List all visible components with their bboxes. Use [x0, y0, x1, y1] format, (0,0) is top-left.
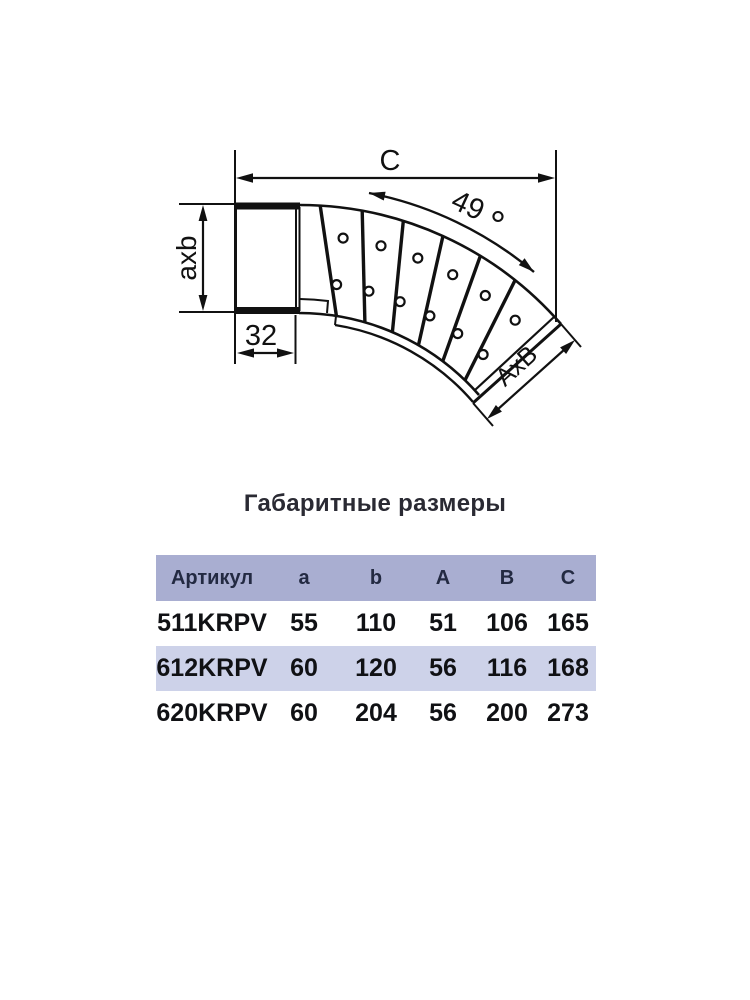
value-cell: 51	[412, 609, 474, 638]
table-row: 620KRPV6020456200273	[156, 691, 596, 736]
article-cell: 620KRPV	[156, 699, 268, 728]
value-cell: 120	[340, 654, 412, 683]
elbow-dimension-drawing: C axb 32	[0, 0, 750, 470]
dimensions-table: Артикул a b A B C 511KRPV551105110616561…	[156, 555, 596, 736]
rivet-icon	[332, 280, 341, 289]
value-cell: 110	[340, 609, 412, 638]
collar-step-line	[300, 299, 328, 313]
arrowhead-left-icon	[236, 173, 253, 183]
table-row: 511KRPV5511051106165	[156, 601, 596, 646]
column-header-A: A	[412, 567, 474, 590]
value-cell: 165	[540, 609, 596, 638]
arrowhead-ccw-icon	[369, 192, 386, 201]
rivet-icon	[339, 234, 348, 243]
value-cell: 106	[474, 609, 540, 638]
article-cell: 612KRPV	[156, 654, 268, 683]
column-header-b: b	[340, 567, 412, 590]
rivet-icon	[448, 270, 457, 279]
arrowhead-right-icon	[277, 348, 294, 357]
column-header-a: a	[268, 567, 340, 590]
rivet-icon	[453, 329, 462, 338]
value-cell: 168	[540, 654, 596, 683]
value-cell: 60	[268, 699, 340, 728]
table-title: Габаритные размеры	[0, 490, 750, 518]
segment-seam-line	[392, 221, 403, 332]
arrowhead-down-icon	[199, 295, 208, 311]
value-cell: 60	[268, 654, 340, 683]
lip-connector	[335, 316, 336, 325]
rivet-icon	[364, 287, 373, 296]
inlet-size-label: axb	[171, 235, 202, 280]
dimension-collar-width: 32	[237, 315, 296, 364]
table-body: 511KRPV5511051106165612KRPV6012056116168…	[156, 601, 596, 736]
rivet-icon	[511, 316, 520, 325]
dimension-angle: 49 °	[369, 185, 534, 272]
rivet-icon	[377, 241, 386, 250]
rivet-icon	[481, 291, 490, 300]
rivet-icon	[425, 311, 434, 320]
segment-seam-line	[362, 211, 365, 322]
value-cell: 204	[340, 699, 412, 728]
value-cell: 200	[474, 699, 540, 728]
article-cell: 511KRPV	[156, 609, 268, 638]
rivet-icon	[479, 350, 488, 359]
value-cell: 273	[540, 699, 596, 728]
dimension-axb-inlet: axb	[171, 204, 234, 312]
arrowhead-up-icon	[199, 205, 208, 221]
column-header-article: Артикул	[156, 567, 268, 590]
arrowhead-right-icon	[538, 173, 555, 183]
collar-body	[236, 205, 296, 312]
dimension-axb-outlet: AxB	[473, 324, 581, 426]
inlet-collar	[234, 205, 300, 312]
value-cell: 56	[412, 654, 474, 683]
value-cell: 116	[474, 654, 540, 683]
page: C axb 32	[0, 0, 750, 1000]
rivet-icon	[413, 254, 422, 263]
table-row: 612KRPV6012056116168	[156, 646, 596, 691]
column-header-B: B	[474, 567, 540, 590]
collar-width-label: 32	[245, 320, 277, 352]
column-header-C: C	[540, 567, 596, 590]
segment-seam-line	[320, 206, 336, 316]
dimension-c: C	[236, 145, 555, 183]
inner-arc	[299, 313, 479, 395]
value-cell: 55	[268, 609, 340, 638]
segment-seam-line	[419, 236, 443, 345]
table-header-row: Артикул a b A B C	[156, 555, 596, 601]
degree-symbol: °	[490, 204, 506, 248]
rivet-icon	[396, 297, 405, 306]
dimension-c-label: C	[380, 145, 401, 177]
value-cell: 56	[412, 699, 474, 728]
